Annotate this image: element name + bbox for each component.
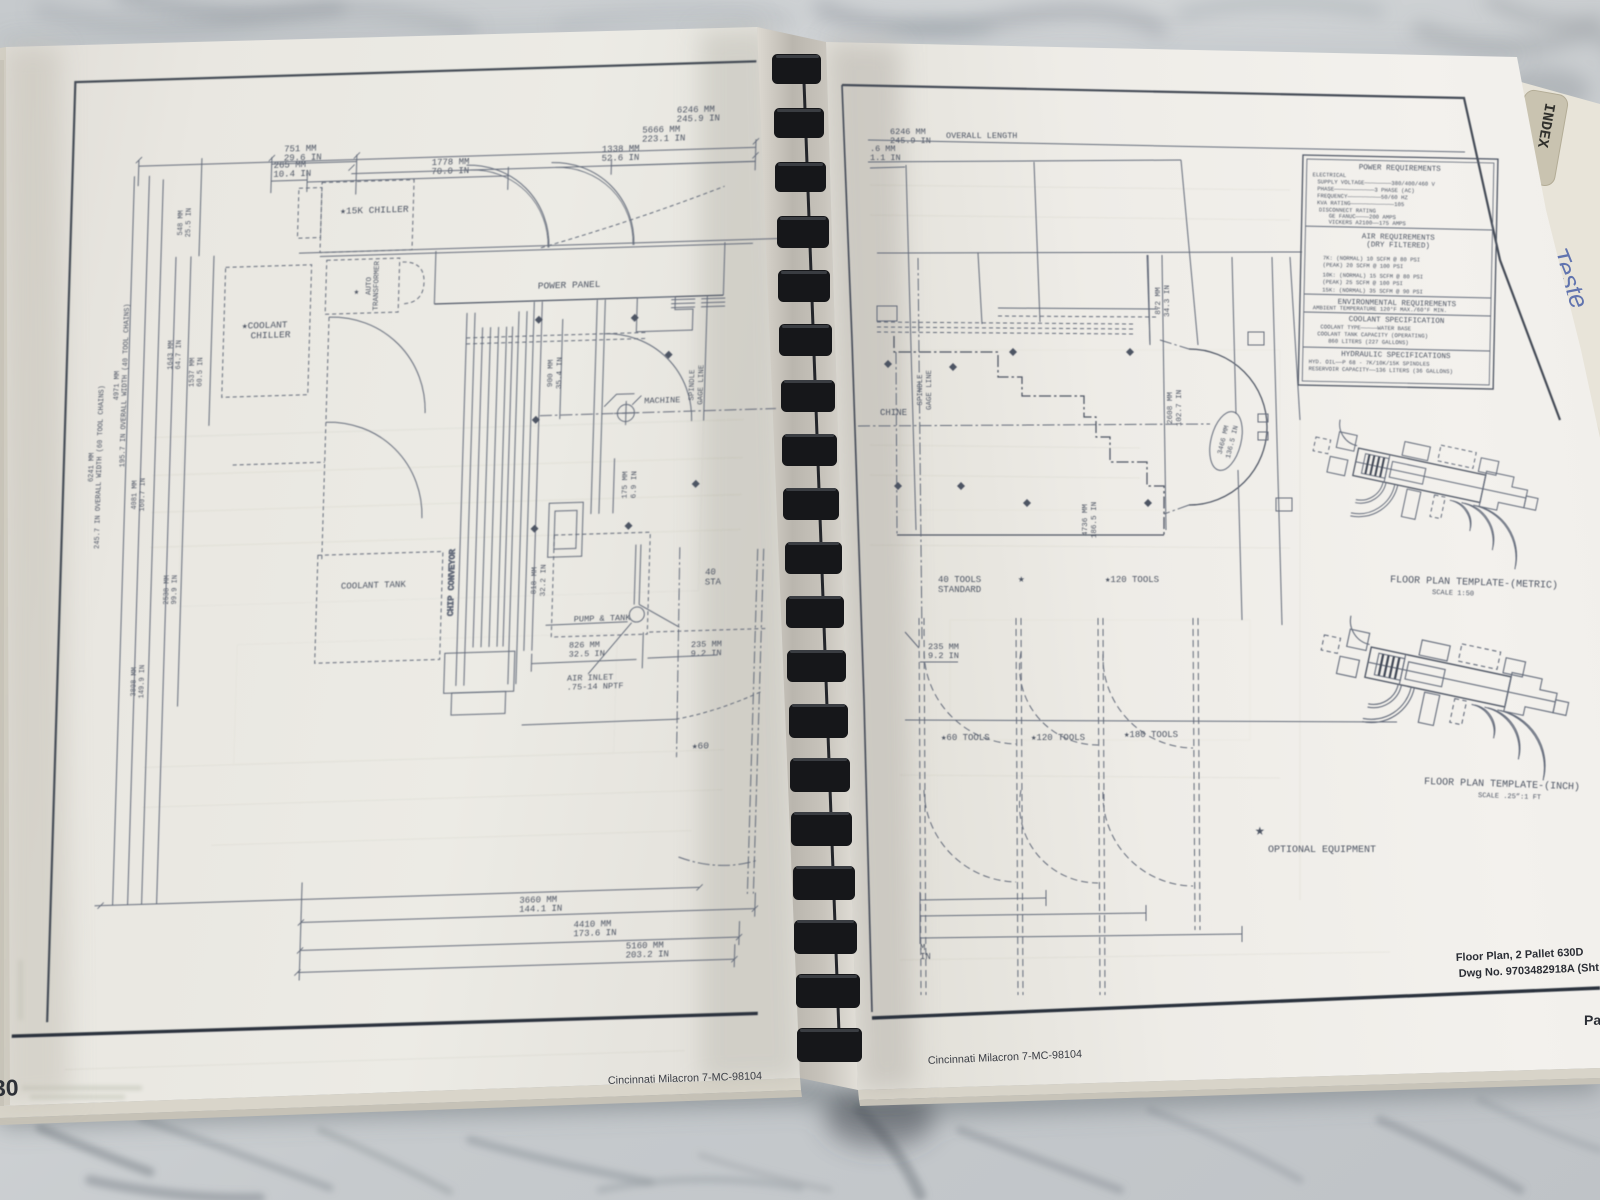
svg-text:★: ★ — [1255, 822, 1265, 840]
svg-text:IN: IN — [920, 952, 931, 962]
svg-text:MACHINE: MACHINE — [644, 395, 680, 406]
svg-text:900 MM35.4 IN: 900 MM35.4 IN — [547, 357, 565, 389]
svg-text:CHINE: CHINE — [880, 408, 907, 418]
svg-text:CHILLER: CHILLER — [250, 329, 291, 341]
svg-text:30: 30 — [0, 1074, 19, 1101]
svg-text:203.2 IN: 203.2 IN — [625, 949, 668, 960]
svg-text:★60 TOOLS: ★60 TOOLS — [941, 733, 990, 743]
svg-text:Pa: Pa — [1584, 1012, 1600, 1028]
svg-text:2538 MM99.9 IN: 2538 MM99.9 IN — [163, 575, 180, 605]
svg-text:2608 MM102.7 IN: 2608 MM102.7 IN — [1167, 390, 1184, 426]
svg-text:SPINDLEGAGE LINE: SPINDLEGAGE LINE — [688, 364, 706, 405]
svg-text:175 MM6.9 IN: 175 MM6.9 IN — [621, 470, 639, 498]
svg-text:9.2 IN: 9.2 IN — [690, 648, 721, 659]
svg-text:818 MM32.2 IN: 818 MM32.2 IN — [530, 564, 548, 596]
svg-text:SCALE 1:50: SCALE 1:50 — [1432, 589, 1474, 598]
svg-text:548 MM25.5 IN: 548 MM25.5 IN — [177, 208, 194, 238]
svg-text:40 TOOLS: 40 TOOLS — [938, 575, 981, 585]
svg-text:STANDARD: STANDARD — [938, 585, 981, 595]
svg-text:.75-14 NPTF: .75-14 NPTF — [567, 681, 624, 693]
svg-text:★15K CHILLER: ★15K CHILLER — [340, 204, 409, 217]
svg-text:245.9 IN: 245.9 IN — [677, 113, 720, 124]
svg-text:★: ★ — [1018, 574, 1025, 586]
svg-text:★: ★ — [354, 287, 360, 297]
svg-text:872 MM34.3 IN: 872 MM34.3 IN — [1155, 285, 1172, 317]
svg-text:9.2 IN: 9.2 IN — [928, 651, 959, 661]
svg-text:★60: ★60 — [692, 740, 710, 752]
svg-text:52.6 IN: 52.6 IN — [601, 153, 639, 164]
svg-text:1643 MM64.7 IN: 1643 MM64.7 IN — [167, 340, 184, 370]
svg-text:★120 TOOLS: ★120 TOOLS — [1031, 733, 1085, 743]
svg-text:173.6 IN: 173.6 IN — [573, 928, 616, 939]
svg-text:32.5 IN: 32.5 IN — [569, 648, 605, 659]
svg-text:POWER PANEL: POWER PANEL — [538, 279, 601, 292]
svg-text:★120 TOOLS: ★120 TOOLS — [1105, 575, 1159, 585]
svg-text:144.1 IN: 144.1 IN — [519, 904, 562, 915]
svg-text:COOLANT TANK: COOLANT TANK — [341, 580, 407, 592]
svg-text:10.4 IN: 10.4 IN — [273, 169, 311, 180]
svg-text:4081 MM160.7 IN: 4081 MM160.7 IN — [131, 478, 148, 512]
svg-text:4736 MM186.5 IN: 4736 MM186.5 IN — [1082, 502, 1099, 538]
svg-text:70.0 IN: 70.0 IN — [431, 166, 469, 177]
svg-text:223.1 IN: 223.1 IN — [642, 133, 685, 144]
svg-text:★180 TOOLS: ★180 TOOLS — [1124, 730, 1178, 740]
svg-text:CHIP CONVEYOR: CHIP CONVEYOR — [446, 549, 458, 616]
svg-text:3808 MM149.9 IN: 3808 MM149.9 IN — [130, 665, 147, 699]
svg-text:OVERALL LENGTH: OVERALL LENGTH — [946, 131, 1017, 141]
svg-text:1537 MM60.5 IN: 1537 MM60.5 IN — [189, 357, 206, 387]
svg-text:OPTIONAL EQUIPMENT: OPTIONAL EQUIPMENT — [1268, 845, 1376, 856]
svg-text:(DRY FILTERED): (DRY FILTERED) — [1366, 241, 1430, 250]
